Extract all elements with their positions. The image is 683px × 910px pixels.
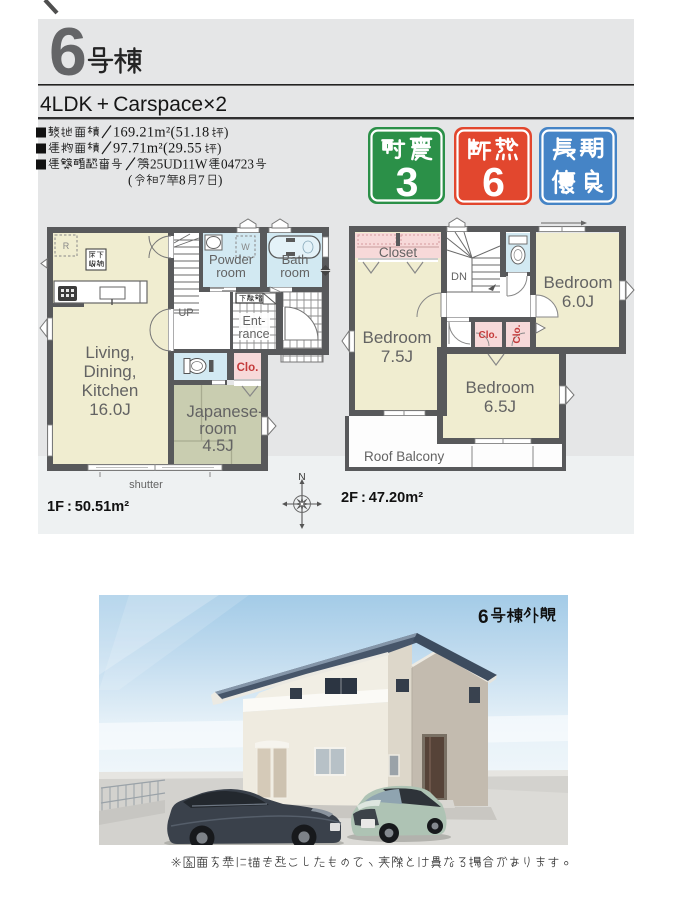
- svg-text:6: 6: [49, 14, 87, 90]
- svg-text:6.5J: 6.5J: [484, 397, 516, 416]
- svg-text:R: R: [63, 241, 70, 251]
- svg-text:7: 7: [198, 173, 205, 188]
- svg-text:97.71m²(29.55: 97.71m²(29.55: [113, 141, 202, 157]
- svg-text:7: 7: [159, 173, 166, 188]
- svg-text:Kitchen: Kitchen: [82, 381, 139, 400]
- svg-text:): ): [224, 125, 228, 140]
- svg-text:Clo.: Clo.: [512, 324, 523, 343]
- svg-text:Ent-: Ent-: [243, 314, 266, 328]
- svg-text:Clo.: Clo.: [237, 362, 259, 374]
- svg-text:Bedroom: Bedroom: [466, 378, 535, 397]
- svg-text:6: 6: [482, 159, 505, 205]
- svg-text:Japanese-: Japanese-: [186, 403, 263, 421]
- svg-text:N: N: [298, 472, 305, 483]
- svg-text:Dining,: Dining,: [84, 362, 137, 381]
- svg-text:Roof Balcony: Roof Balcony: [364, 449, 445, 464]
- svg-text:Closet: Closet: [379, 245, 418, 260]
- svg-text:7.5J: 7.5J: [381, 347, 413, 366]
- svg-text:): ): [217, 141, 221, 156]
- svg-text:4.5J: 4.5J: [202, 437, 233, 455]
- svg-text:room: room: [216, 265, 246, 280]
- svg-text:6.0J: 6.0J: [562, 292, 594, 311]
- svg-text:2F : 47.20m²: 2F : 47.20m²: [341, 490, 423, 506]
- svg-text:Bedroom: Bedroom: [363, 328, 432, 347]
- svg-text:W: W: [241, 242, 250, 252]
- svg-text:6: 6: [478, 607, 489, 628]
- svg-text:3: 3: [396, 159, 419, 205]
- svg-text:UP: UP: [178, 307, 193, 319]
- svg-text:rance: rance: [238, 327, 269, 341]
- svg-text:04723: 04723: [221, 157, 254, 172]
- svg-text:169.21m²(51.18: 169.21m²(51.18: [113, 125, 209, 141]
- svg-text:): ): [218, 173, 222, 188]
- svg-text:(: (: [128, 173, 132, 188]
- svg-text:4LDK + Carspace×2: 4LDK + Carspace×2: [40, 93, 227, 116]
- svg-text:Clo.: Clo.: [479, 330, 498, 341]
- svg-text:Bedroom: Bedroom: [544, 273, 613, 292]
- svg-text:room: room: [280, 265, 310, 280]
- svg-text:room: room: [199, 420, 237, 438]
- svg-text:25UD11W: 25UD11W: [150, 157, 208, 172]
- svg-text:1F : 50.51m²: 1F : 50.51m²: [47, 499, 129, 515]
- svg-text:DN: DN: [451, 271, 467, 283]
- svg-text:shutter: shutter: [129, 479, 163, 491]
- svg-text:8: 8: [179, 173, 186, 188]
- svg-text:Living,: Living,: [85, 343, 134, 362]
- svg-text:16.0J: 16.0J: [89, 400, 131, 419]
